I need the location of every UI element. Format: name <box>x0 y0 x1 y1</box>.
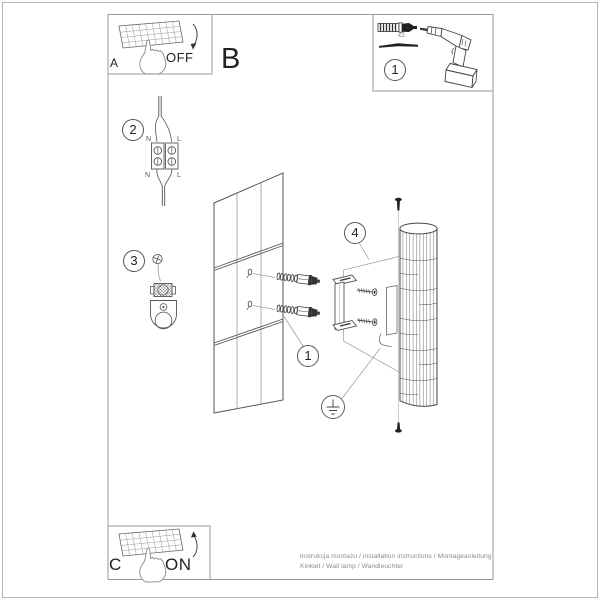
drill-hole <box>248 269 252 275</box>
diagram-artwork <box>0 0 600 600</box>
wire-label-n-out: N <box>145 172 150 179</box>
switch-off-label: OFF <box>166 50 194 65</box>
drill-bit-icon <box>379 43 418 48</box>
earth-symbol-icon <box>322 396 345 419</box>
panel-b-label: B <box>221 43 240 76</box>
wire-label-l-out: L <box>177 172 181 179</box>
callout-tools-1: 1 <box>384 59 406 81</box>
page-border <box>3 3 598 598</box>
lamp-cylinder <box>379 198 437 433</box>
fixing-screw-icon <box>357 287 378 296</box>
anchor-quantity-label: x2 <box>398 32 405 39</box>
arrow-up-icon <box>193 536 197 557</box>
panel-a-label: A <box>110 56 118 70</box>
top-screw-icon <box>395 198 402 202</box>
footer-line-1: Instrukcja montażu / installation instru… <box>300 552 492 562</box>
wall-plug-icon <box>378 23 417 32</box>
callout-lamp-4: 4 <box>344 222 366 244</box>
callout-bracket-3: 3 <box>123 250 145 272</box>
cordless-drill-icon <box>420 27 477 88</box>
switch-on-label: ON <box>165 555 192 575</box>
footer-line-2: Kinkiet / Wall lamp / Wandleuchter <box>300 562 492 572</box>
callout-wiring-2: 2 <box>122 119 144 141</box>
panel-c-label: C <box>109 555 121 575</box>
arrow-down-icon <box>193 24 197 45</box>
switch-panel-off-icon <box>119 21 197 74</box>
bottom-screw-icon <box>397 423 400 431</box>
drill-hole <box>248 301 252 307</box>
fixing-screw-icon <box>357 317 378 326</box>
wire-label-n-in: N <box>146 136 151 143</box>
footer-text: Instrukcja montażu / installation instru… <box>300 552 492 571</box>
wire-label-l-in: L <box>177 136 181 143</box>
callout-anchors-1: 1 <box>297 345 319 367</box>
terminal-block-icon <box>152 96 179 206</box>
instruction-sheet: A OFF B C ON x2 N L N L 1 2 3 4 1 Instru… <box>0 0 600 600</box>
cable-clamp-icon <box>151 253 177 329</box>
wall-tiles <box>214 173 283 413</box>
